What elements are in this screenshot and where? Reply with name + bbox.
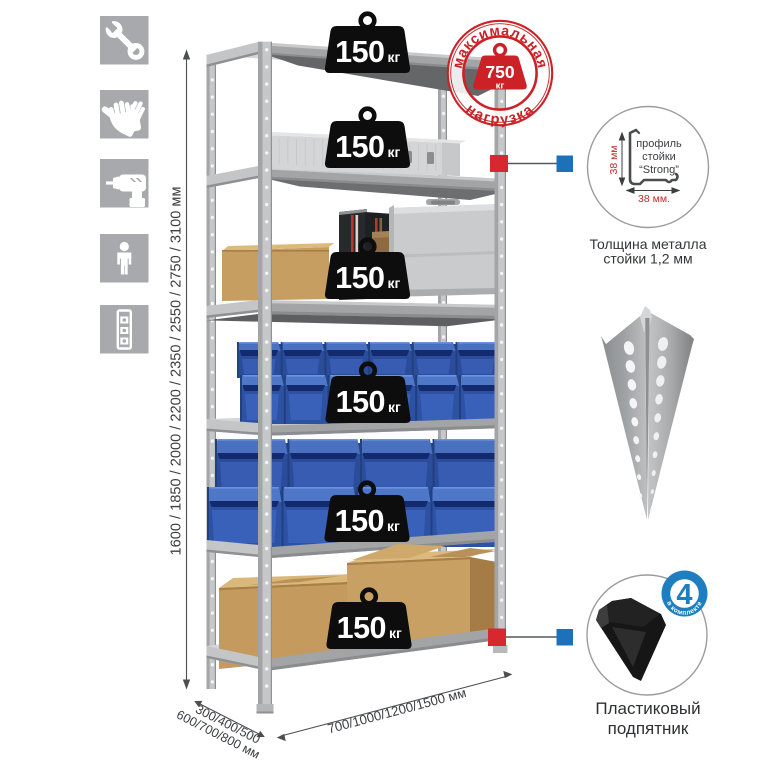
- svg-text:38 мм: 38 мм: [608, 145, 620, 174]
- svg-text:кг: кг: [496, 81, 505, 92]
- svg-text:150: 150: [335, 504, 384, 538]
- svg-text:подпятник: подпятник: [608, 719, 689, 738]
- svg-text:Пластиковый: Пластиковый: [595, 699, 700, 718]
- svg-text:150: 150: [337, 611, 386, 645]
- svg-text:стойки 1,2 мм: стойки 1,2 мм: [603, 251, 692, 267]
- svg-text:кг: кг: [389, 625, 402, 641]
- svg-text:кг: кг: [387, 518, 400, 534]
- svg-text:4: 4: [676, 579, 692, 611]
- svg-text:150: 150: [335, 35, 384, 69]
- svg-text:38 мм.: 38 мм.: [638, 193, 670, 205]
- svg-text:кг: кг: [388, 49, 401, 65]
- svg-text:1600 / 1850 / 2000 / 2200 / 23: 1600 / 1850 / 2000 / 2200 / 2350 / 2550 …: [169, 187, 185, 556]
- svg-text:750: 750: [485, 62, 514, 82]
- svg-text:профиль: профиль: [636, 138, 682, 150]
- svg-text:150: 150: [336, 385, 385, 419]
- svg-text:кг: кг: [388, 144, 401, 160]
- svg-text:150: 150: [335, 261, 384, 295]
- svg-text:стойки: стойки: [642, 151, 676, 163]
- svg-text:кг: кг: [388, 275, 401, 291]
- svg-text:кг: кг: [388, 399, 401, 415]
- svg-text:150: 150: [335, 130, 384, 164]
- svg-text:“Strong”: “Strong”: [639, 164, 679, 176]
